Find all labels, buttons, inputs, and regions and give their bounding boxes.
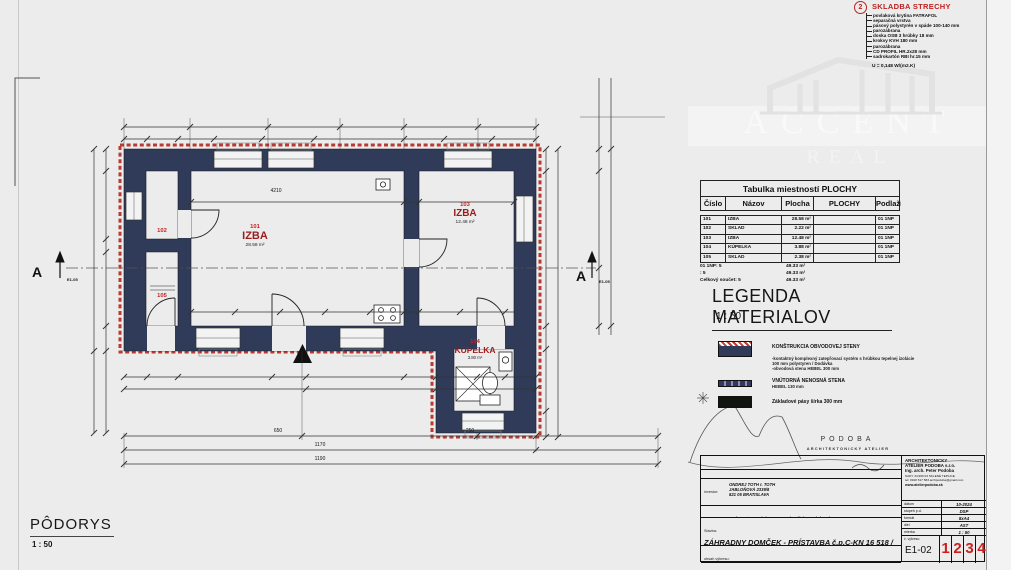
firm-info: ARCHITEKTONICKY ATELIER PODOBA s.r.o. In…	[902, 456, 986, 501]
title-block-fields: dátum10-2024stupeň p.d.DSPformát8xA4diel…	[902, 501, 986, 536]
atelier-logo-name: PODOBA	[795, 436, 900, 443]
field-value: AST	[942, 522, 986, 528]
table-cell: 01 1NP	[875, 216, 901, 224]
field-label: dátum	[902, 501, 942, 507]
table-cell: KÚPELKA	[725, 244, 781, 252]
summary-label: 01 1NP: 5	[700, 264, 722, 269]
table-row: 105SKLAD2.38 m²01 1NP	[701, 254, 899, 262]
summary-value: 49.33 m²	[786, 264, 805, 271]
cooker	[374, 305, 400, 323]
room-table-summary: 01 1NP: 549.33 m²: 549.33 m²Celkový souč…	[700, 264, 900, 284]
table-cell: IZBA	[725, 216, 781, 224]
sheet-number: 4	[975, 536, 987, 563]
sheet-number: 1	[939, 536, 951, 563]
table-cell: 105	[701, 254, 725, 262]
table-cell	[813, 225, 875, 233]
atelier-logo-subtitle: ARCHITEKTONICKÝ ATELIER	[788, 446, 908, 451]
title-block-field-row: mierka1 : 50	[902, 529, 986, 536]
room-table-rows: 101IZBA28.58 m²01 1NP102SKLAD2.22 m²01 1…	[700, 215, 900, 263]
table-summary-row: 01 1NP: 549.33 m²	[700, 264, 900, 271]
room-label-103: 103 IZBA 12.48 m²	[430, 202, 500, 226]
room-table: Tabulka miestností PLOCHY Číslo Názov Pl…	[700, 180, 900, 284]
section-ref-right: E1-05	[599, 279, 610, 284]
field-value: DSP	[942, 508, 986, 514]
material-item-exterior-wall	[718, 341, 752, 357]
investor-row: investor: ONDREJ TOTH r. TOTH JABLOŇOVÁ …	[701, 479, 901, 506]
table-cell: 01 1NP	[875, 254, 901, 262]
dimension-value: 4210	[270, 188, 281, 194]
section-marker-right: A	[576, 268, 586, 284]
room-table-title: Tabulka miestností PLOCHY	[701, 181, 899, 197]
title-block-field-row: dielAST	[902, 522, 986, 529]
room-label-105: 105	[146, 293, 178, 300]
table-cell: SKLAD	[725, 225, 781, 233]
table-row: 103IZBA12.48 m²01 1NP	[701, 235, 899, 244]
material-label: KONŠTRUKCIA OBVODOVEJ STENY	[772, 344, 987, 350]
material-item-foundation	[718, 396, 752, 408]
title-block-right: ARCHITEKTONICKY ATELIER PODOBA s.r.o. In…	[901, 456, 986, 561]
table-cell: 01 1NP	[875, 225, 901, 233]
field-label: stupeň p.d.	[902, 508, 942, 514]
table-cell: 104	[701, 244, 725, 252]
room-table-headers: Číslo Názov Plocha PLOCHY Podlaží	[701, 197, 899, 210]
room-label-102: 102	[146, 228, 178, 235]
plan-scale: 1 : 50	[32, 540, 52, 549]
section-ref-left: E1-05	[67, 277, 78, 282]
title-block: zodpovedný projektant: Ing. arch. Peter …	[700, 455, 985, 562]
table-row: 101IZBA28.58 m²01 1NP	[701, 216, 899, 225]
material-item-interior-wall	[718, 380, 752, 387]
table-cell	[813, 254, 875, 262]
foundation-swatch	[718, 396, 752, 408]
summary-label: Celkový součet: 5	[700, 278, 741, 283]
project-row: Stavba: ZÁHRADNY DOMČEK - PRÍSTAVBA č.p.…	[701, 518, 901, 546]
field-label: diel	[902, 522, 942, 528]
table-cell	[813, 244, 875, 252]
roof-layer-item: sadrokartón RBI hr.15 mm	[873, 54, 959, 59]
dimension-value: 1190	[315, 456, 326, 462]
title-block-field-row: dátum10-2024	[902, 501, 986, 508]
materials-legend-title: LEGENDA MATERIALOV	[712, 286, 892, 331]
title-block-field-row: formát8xA4	[902, 515, 986, 522]
room-label-104: 104 KÚPELKA 3.80 m²	[440, 339, 510, 361]
room-label-101: 101 IZBA 28.58 m²	[220, 224, 290, 249]
dimension-value: 250	[466, 428, 474, 434]
plan-title: PÔDORYS	[30, 516, 114, 537]
field-value: 8xA4	[942, 515, 986, 521]
summary-value: 49.33 m²	[786, 271, 805, 278]
table-cell	[813, 235, 875, 243]
responsible-row: zodpovedný projektant: Ing. arch. Peter …	[701, 469, 901, 479]
toilet	[483, 373, 498, 394]
materials-legend-scale: 1 : 50	[716, 311, 741, 322]
field-label: formát	[902, 515, 942, 521]
table-cell: 2.38 m²	[781, 254, 813, 262]
field-value: 10-2024	[942, 501, 986, 507]
sheet-number: 2	[951, 536, 963, 563]
dimension-value: 1170	[315, 442, 326, 448]
table-cell: 103	[701, 235, 725, 243]
dimension-value: 650	[274, 428, 282, 434]
field-label: mierka	[902, 529, 942, 535]
authors-row: autori: Ing. arch. Peter Podoba, Ing. ar…	[701, 506, 901, 518]
exterior-wall-swatch	[718, 341, 752, 357]
table-summary-row: : 549.33 m²	[700, 271, 900, 278]
section-marker-left: A	[32, 264, 42, 280]
table-cell: 01 1NP	[875, 235, 901, 243]
table-cell	[813, 216, 875, 224]
table-row: 104KÚPELKA3.88 m²01 1NP	[701, 244, 899, 253]
sheet-numbers: 1234	[939, 536, 987, 563]
roof-composition-legend: 2 SKLADBA STRECHY povlaková krytina FATR…	[850, 0, 1011, 92]
drawing-number-cell: č. výkresu: E1-02	[902, 536, 939, 563]
roof-legend-items: povlaková krytina FATRAFOLseparačná vrst…	[866, 13, 959, 59]
interior-wall-swatch	[718, 380, 752, 387]
table-row: 102SKLAD2.22 m²01 1NP	[701, 225, 899, 234]
table-cell: 3.88 m²	[781, 244, 813, 252]
table-cell: IZBA	[725, 235, 781, 243]
table-cell: 01 1NP	[875, 244, 901, 252]
table-cell: 101	[701, 216, 725, 224]
title-block-field-row: stupeň p.d.DSP	[902, 508, 986, 515]
field-value: 1 : 50	[942, 529, 986, 535]
material-label: Základové pásy šírka 300 mm	[772, 399, 987, 405]
summary-label: : 5	[700, 271, 706, 276]
drawing-number: E1-02	[905, 545, 932, 556]
sheet-number: 3	[963, 536, 975, 563]
roof-legend-title: SKLADBA STRECHY	[872, 2, 951, 11]
drawing-content-row: obsah výkresu: PÔDORYS +0,000	[701, 546, 901, 563]
u-value: U = 0,148 W/(m2.K)	[872, 64, 915, 69]
frame-corner-mark	[15, 78, 40, 186]
table-cell: 28.58 m²	[781, 216, 813, 224]
table-cell: SKLAD	[725, 254, 781, 262]
table-cell: 12.48 m²	[781, 235, 813, 243]
table-cell: 102	[701, 225, 725, 233]
summary-value: 49.33 m²	[786, 278, 805, 285]
drawing-sheet: ACCENT REAL	[0, 0, 1011, 570]
table-summary-row: Celkový součet: 549.33 m²	[700, 278, 900, 285]
table-cell: 2.22 m²	[781, 225, 813, 233]
